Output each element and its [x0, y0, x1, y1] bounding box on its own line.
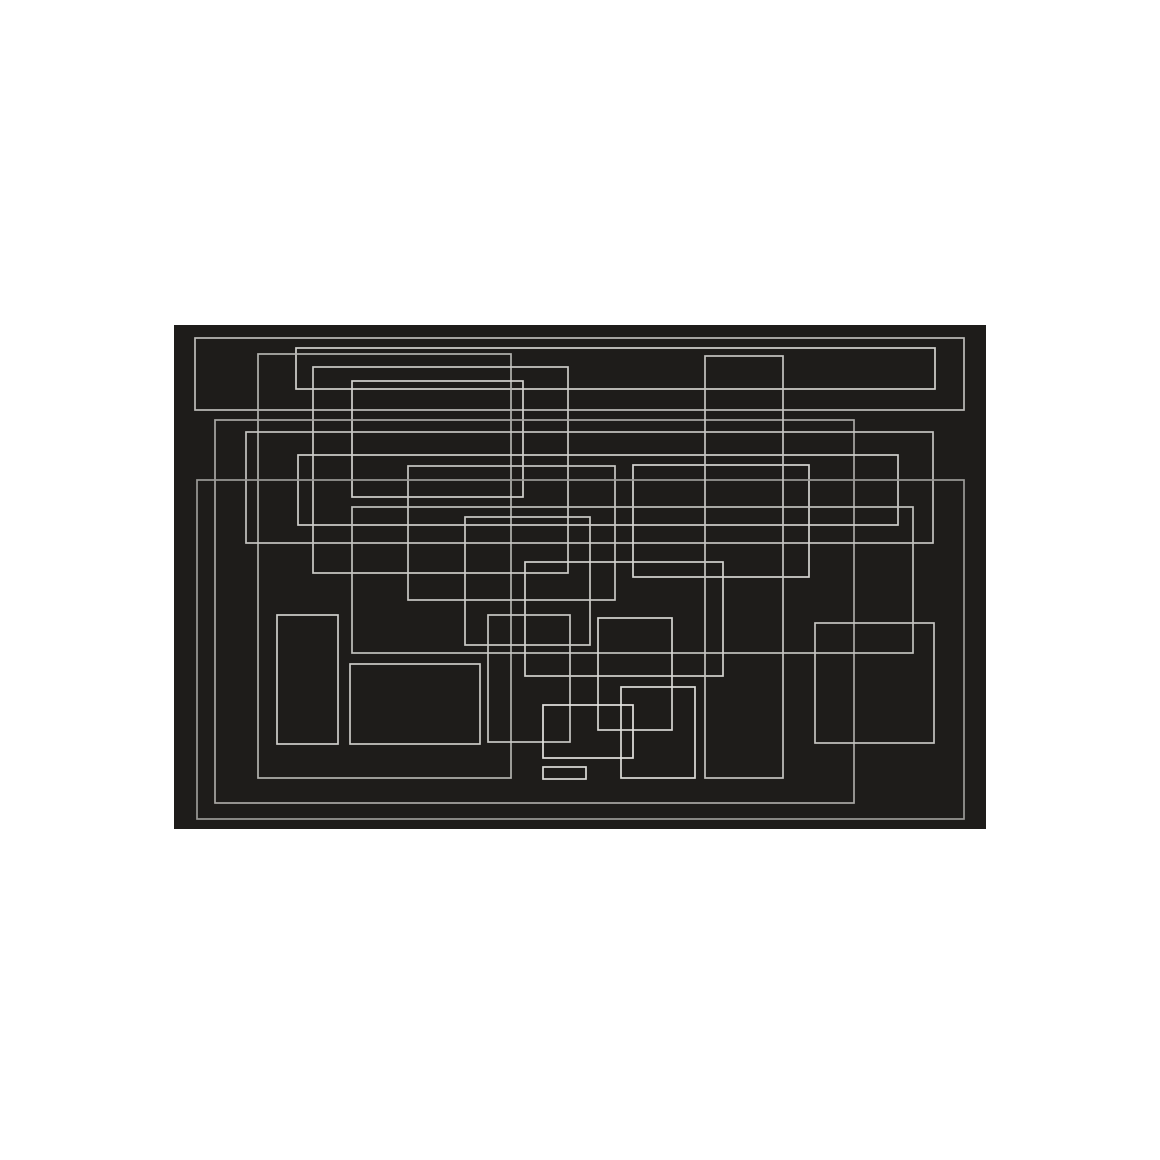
abstract-rectangle-artwork — [0, 0, 1160, 1160]
page-background — [0, 0, 1160, 1160]
dark-canvas — [174, 325, 986, 829]
